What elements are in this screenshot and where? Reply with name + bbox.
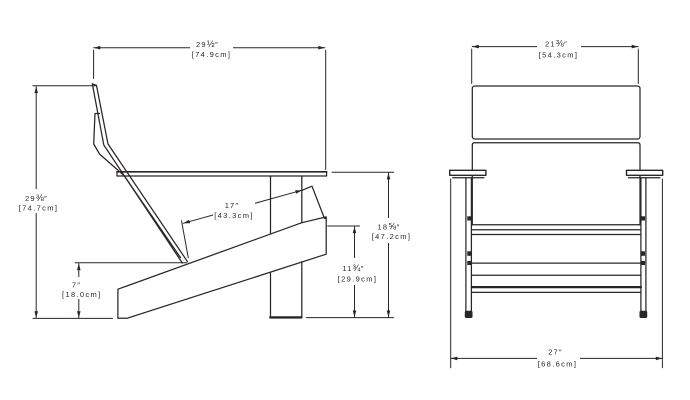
svg-text:27″: 27″ [548,347,563,356]
svg-text:7″: 7″ [72,280,81,289]
svg-text:29⅜″: 29⅜″ [25,193,48,204]
svg-text:11¾″: 11¾″ [342,263,364,274]
svg-text:[68.6cm]: [68.6cm] [538,360,578,369]
svg-text:[43.3cm]: [43.3cm] [214,211,254,220]
svg-text:[54.3cm]: [54.3cm] [539,51,579,60]
svg-text:[18.0cm]: [18.0cm] [62,290,102,299]
svg-text:[29.9cm]: [29.9cm] [338,274,378,283]
svg-text:[47.2cm]: [47.2cm] [372,232,412,241]
svg-text:29½″: 29½″ [196,39,219,50]
svg-text:17″: 17″ [225,201,240,210]
svg-text:18⅝″: 18⅝″ [378,221,401,232]
svg-text:[74.7cm]: [74.7cm] [19,204,59,213]
svg-text:21⅜″: 21⅜″ [545,38,568,49]
svg-text:[74.9cm]: [74.9cm] [192,50,232,59]
